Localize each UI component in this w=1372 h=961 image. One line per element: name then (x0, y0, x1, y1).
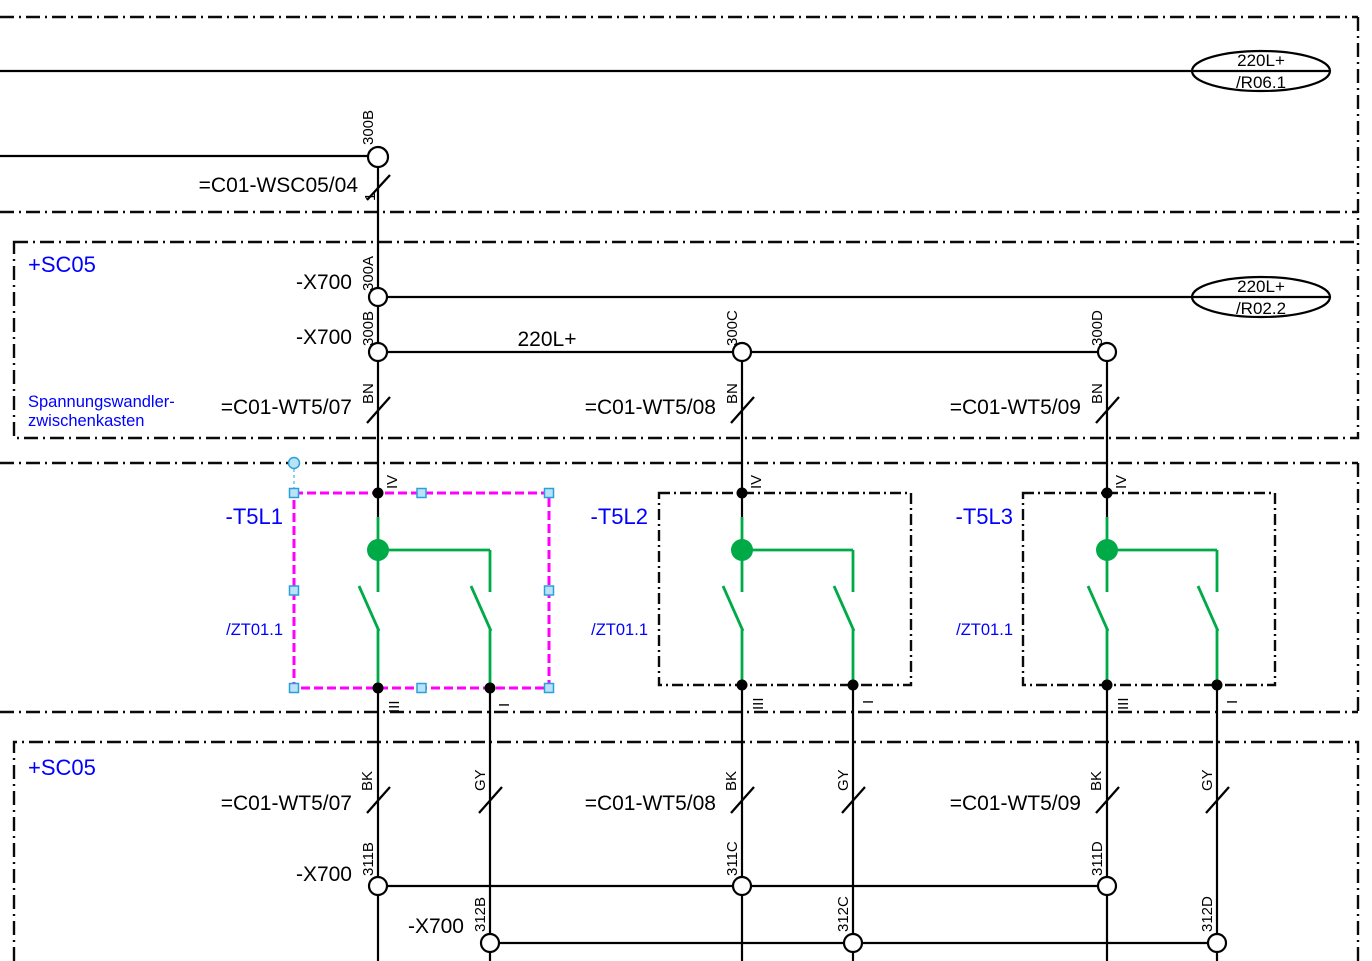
core-label-bn-1[interactable]: BN (360, 383, 377, 404)
pin-label-t5l3-iii[interactable]: III (1115, 697, 1132, 710)
selection-handle-se[interactable] (545, 684, 554, 693)
device-crossref-t5l2[interactable]: /ZT01.1 (591, 621, 648, 639)
core-label-bn-3[interactable]: BN (1089, 383, 1106, 404)
pin-label-t5l1-i[interactable]: I (496, 703, 513, 707)
signal-ref-r02[interactable]: 220L+ /R02.2 (1192, 277, 1330, 318)
pin-label-t5l2-i[interactable]: I (860, 700, 877, 704)
signal-ref-signal[interactable]: 220L+ (1237, 51, 1285, 70)
device-crossref-t5l3[interactable]: /ZT01.1 (956, 621, 1013, 639)
core-label-bk-2[interactable]: BK (723, 771, 740, 791)
cable-wt5-08-bottom[interactable]: =C01-WT5/08 (585, 792, 716, 815)
green-junction-dot (367, 539, 389, 561)
zone-borders (0, 17, 1358, 961)
terminal-label-311d[interactable]: 311D (1089, 841, 1106, 876)
terminal-label-300b-incoming[interactable]: 300B (360, 110, 377, 145)
strip-x700-row1[interactable]: -X700 (296, 271, 352, 294)
terminal-311c[interactable] (733, 877, 751, 895)
zone-top-name[interactable]: +SC05 (28, 252, 96, 277)
terminal-311b[interactable] (369, 877, 387, 895)
terminal-label-300b[interactable]: 300B (360, 311, 377, 346)
device-crossref-t5l1[interactable]: /ZT01.1 (226, 621, 283, 639)
pin-label-t5l3-i[interactable]: I (1224, 700, 1241, 704)
cable-wt5-09-top[interactable]: =C01-WT5/09 (950, 396, 1081, 419)
cable-wt5-09-bottom[interactable]: =C01-WT5/09 (950, 792, 1081, 815)
selection-handle-ne[interactable] (545, 489, 554, 498)
pin-label-t5l2-iii[interactable]: III (750, 697, 767, 710)
core-label-gy-3[interactable]: GY (1199, 769, 1216, 791)
terminal-label-312d[interactable]: 312D (1199, 896, 1216, 932)
green-junction-dot (731, 539, 753, 561)
selection-handle-sw[interactable] (290, 684, 299, 693)
signal-ref-r06[interactable]: 220L+ /R06.1 (1192, 51, 1330, 92)
terminal-311d[interactable] (1098, 877, 1116, 895)
terminal-312b[interactable] (481, 934, 499, 952)
selection-anchor-handle[interactable] (289, 458, 300, 469)
signal-ref-signal[interactable]: 220L+ (1237, 277, 1285, 296)
selection-handle-n[interactable] (417, 489, 426, 498)
pin-label-t5l1-top[interactable]: IV (384, 475, 401, 489)
wire-label-220l[interactable]: 220L+ (518, 328, 577, 351)
wires[interactable] (0, 71, 1329, 961)
device-tag-t5l3[interactable]: -T5L3 (956, 504, 1013, 529)
device-tag-t5l1[interactable]: -T5L1 (226, 504, 283, 529)
strip-x700-row-311[interactable]: -X700 (296, 863, 352, 886)
core-label-gy-1[interactable]: GY (472, 769, 489, 791)
selection-handle-nw[interactable] (290, 489, 299, 498)
schematic-canvas: 220L+ /R06.1 220L+ /R02.2 (0, 0, 1372, 961)
zone-bottom-sc05-border (14, 742, 1358, 961)
terminal-label-311c[interactable]: 311C (724, 841, 741, 876)
junction-dots (373, 488, 1223, 694)
device-t5l2-symbol[interactable] (723, 517, 854, 685)
zone-top-note-line1[interactable]: Spannungswandler- (28, 393, 175, 411)
selection-handle-e[interactable] (545, 586, 554, 595)
cable-wt5-08-top[interactable]: =C01-WT5/08 (585, 396, 716, 419)
terminal-label-311b[interactable]: 311B (360, 842, 377, 876)
signal-ref-target[interactable]: /R02.2 (1236, 299, 1286, 318)
terminal-312c[interactable] (844, 934, 862, 952)
device-t5l3-outline[interactable] (1023, 493, 1275, 685)
zone-bottom-name[interactable]: +SC05 (28, 755, 96, 780)
device-t5l2-outline[interactable] (659, 493, 911, 685)
signal-ref-target[interactable]: /R06.1 (1236, 73, 1286, 92)
terminal-label-300c[interactable]: 300C (724, 310, 741, 346)
zone-top-note-line2[interactable]: zwischenkasten (28, 412, 144, 430)
device-tag-t5l2[interactable]: -T5L2 (591, 504, 648, 529)
terminal-312d[interactable] (1208, 934, 1226, 952)
terminal-label-312c[interactable]: 312C (835, 896, 852, 932)
selection-handle-s[interactable] (417, 684, 426, 693)
pin-label-t5l2-top[interactable]: IV (748, 475, 765, 489)
selection-handle-w[interactable] (290, 586, 299, 595)
terminal-label-300a[interactable]: 300A (360, 256, 377, 291)
device-t5l1-outline-selected[interactable] (294, 493, 549, 688)
strip-x700-row-312[interactable]: -X700 (408, 915, 464, 938)
core-label-bn-2[interactable]: BN (724, 383, 741, 404)
cable-wt5-07-top[interactable]: =C01-WT5/07 (221, 396, 352, 419)
incoming-cable-label[interactable]: =C01-WSC05/04 (199, 174, 359, 197)
green-junction-dot (1096, 539, 1118, 561)
device-t5l3-symbol[interactable] (1088, 517, 1218, 685)
terminal-300b-incoming[interactable] (368, 147, 388, 167)
core-label-gy-2[interactable]: GY (835, 769, 852, 791)
core-label-bk-1[interactable]: BK (359, 771, 376, 791)
core-label-bk-3[interactable]: BK (1088, 771, 1105, 791)
pin-label-t5l1-iii[interactable]: III (386, 700, 403, 713)
core-label-1[interactable]: 1 (362, 193, 379, 201)
pin-label-t5l3-top[interactable]: IV (1113, 475, 1130, 489)
device-t5l1-symbol[interactable] (359, 517, 491, 688)
cable-wt5-07-bottom[interactable]: =C01-WT5/07 (221, 792, 352, 815)
terminal-label-300d[interactable]: 300D (1089, 310, 1106, 346)
terminal-label-312b[interactable]: 312B (472, 897, 489, 932)
strip-x700-row2[interactable]: -X700 (296, 326, 352, 349)
